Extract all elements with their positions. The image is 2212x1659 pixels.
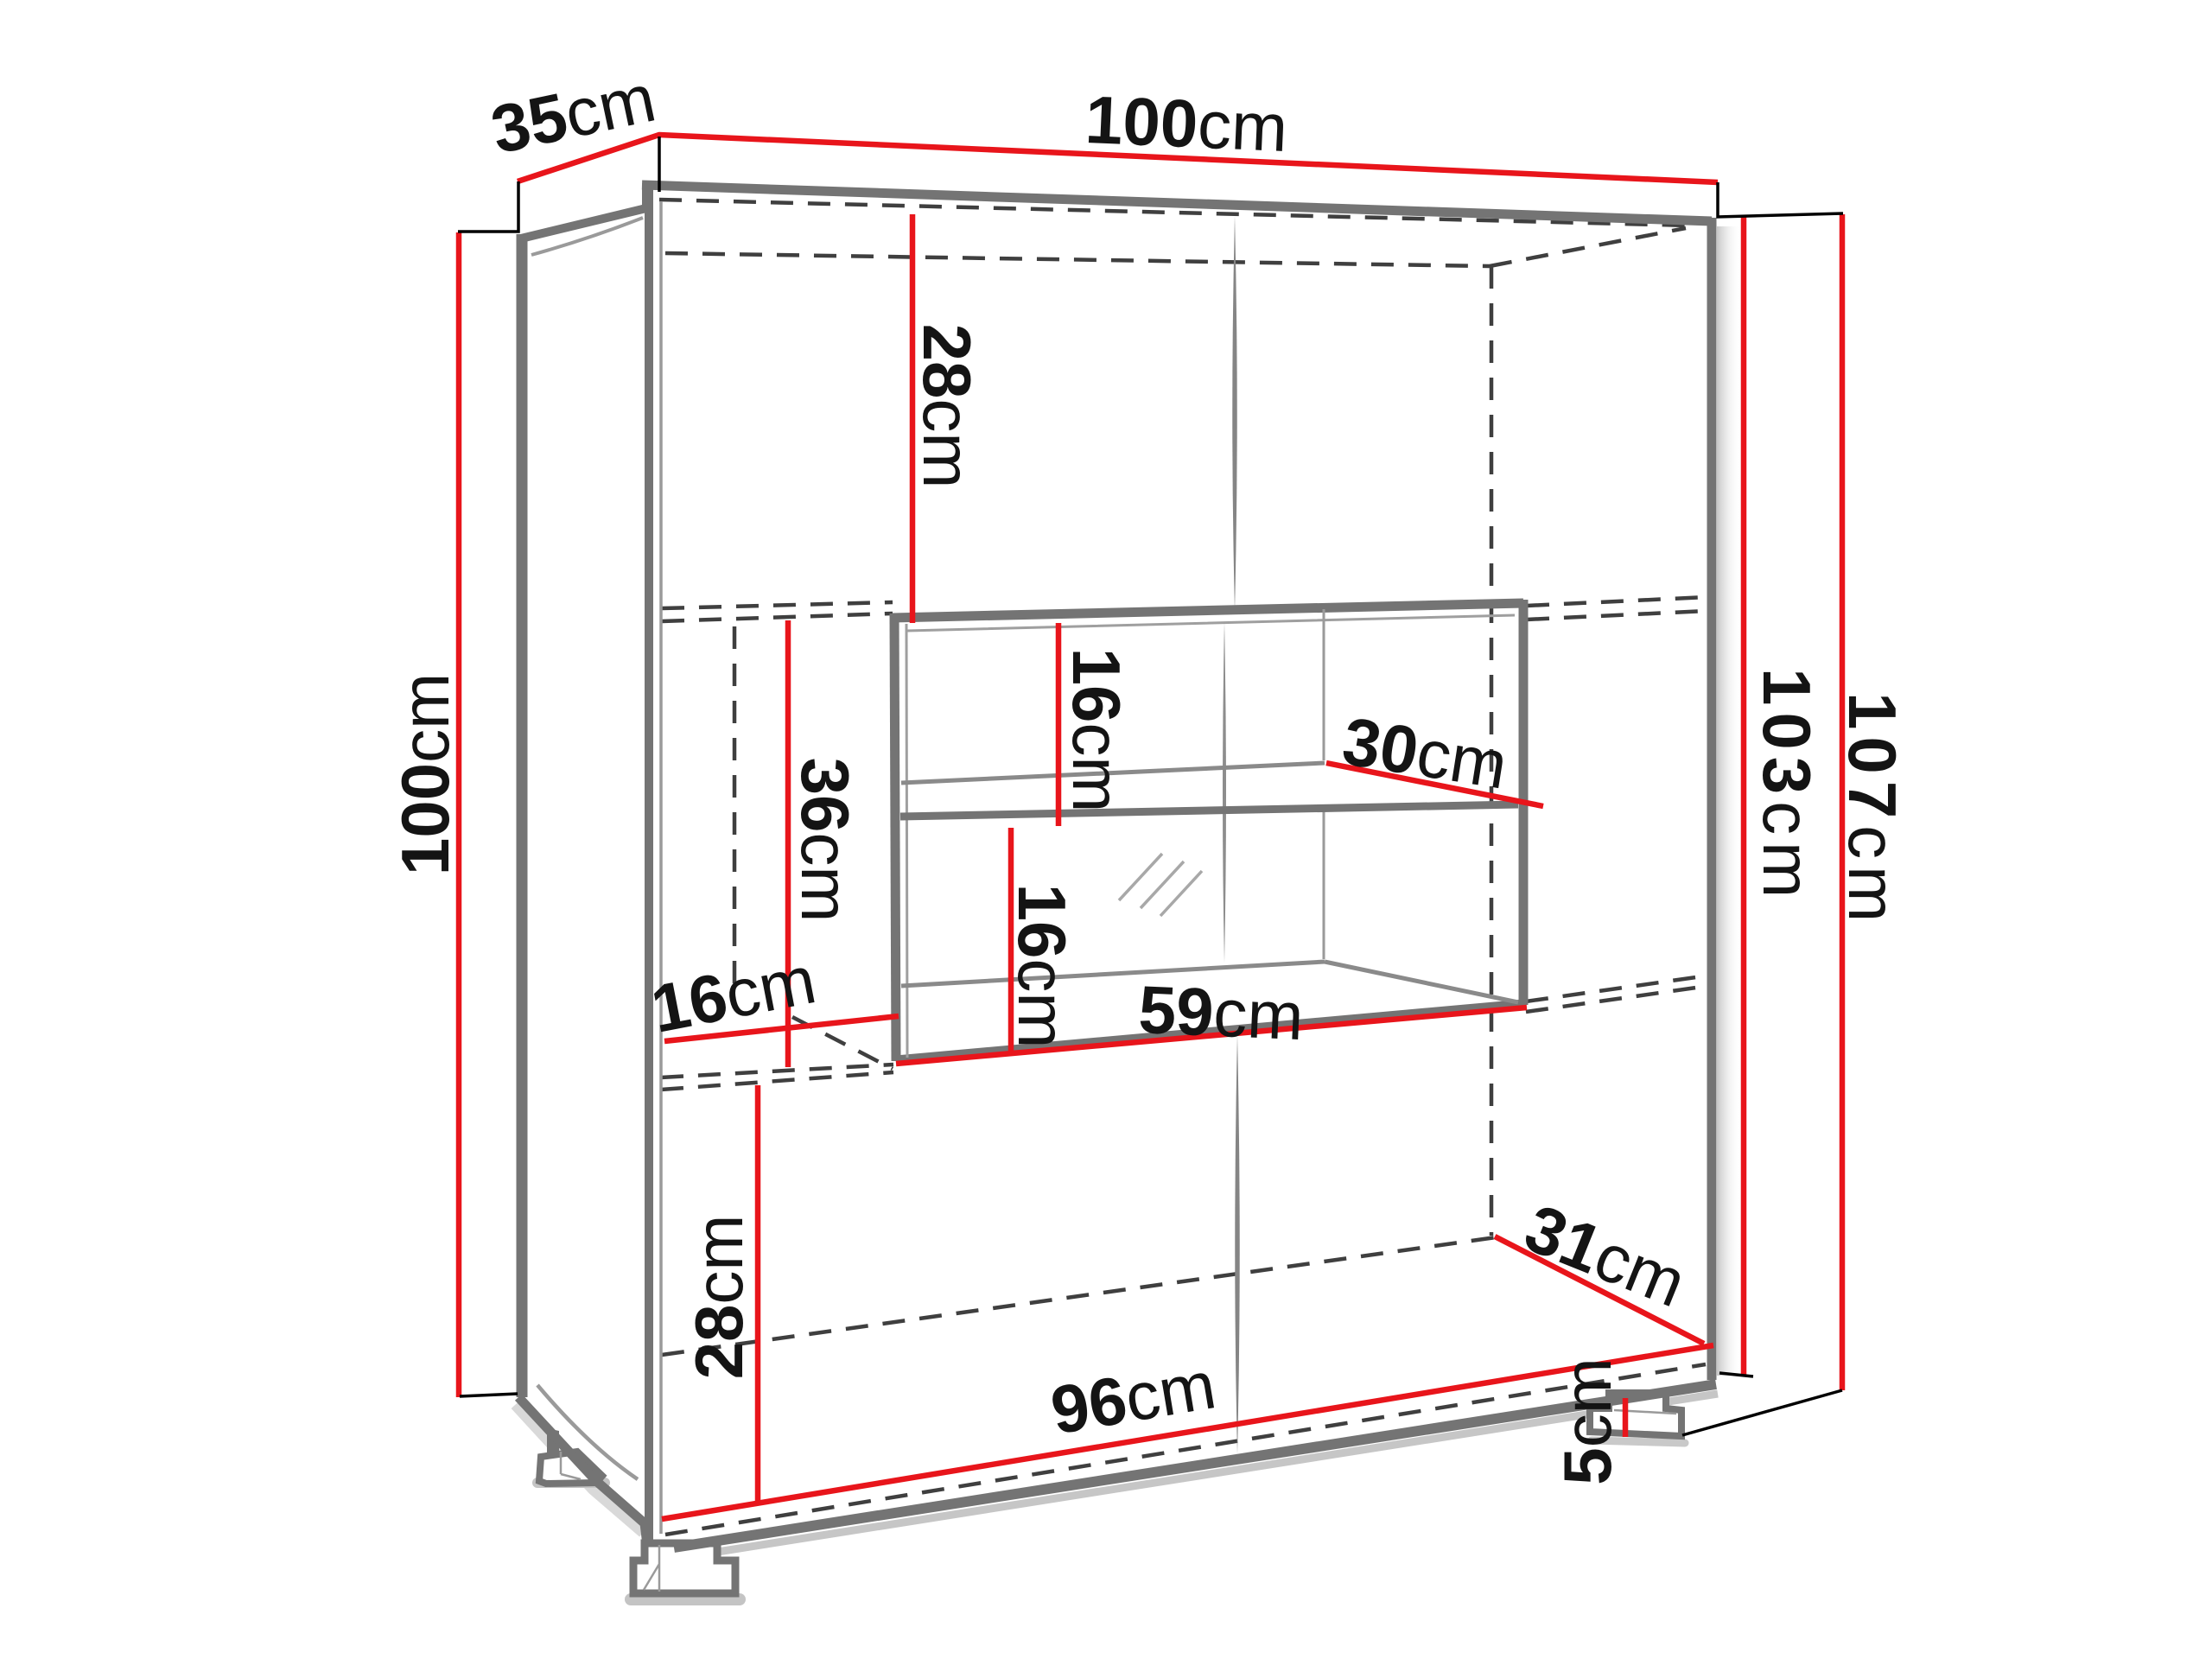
svg-text:36cm: 36cm	[787, 758, 863, 923]
svg-text:28cm: 28cm	[909, 324, 985, 489]
svg-text:16cm: 16cm	[1004, 884, 1080, 1049]
svg-text:16cm: 16cm	[1058, 648, 1135, 813]
svg-text:28cm: 28cm	[681, 1215, 757, 1380]
svg-text:100cm: 100cm	[387, 673, 463, 875]
svg-text:107cm: 107cm	[1834, 692, 1910, 929]
svg-text:5cm: 5cm	[1549, 1357, 1625, 1484]
svg-text:100cm: 100cm	[1084, 81, 1289, 166]
svg-text:59cm: 59cm	[1137, 971, 1305, 1054]
svg-text:103cm: 103cm	[1749, 668, 1825, 905]
